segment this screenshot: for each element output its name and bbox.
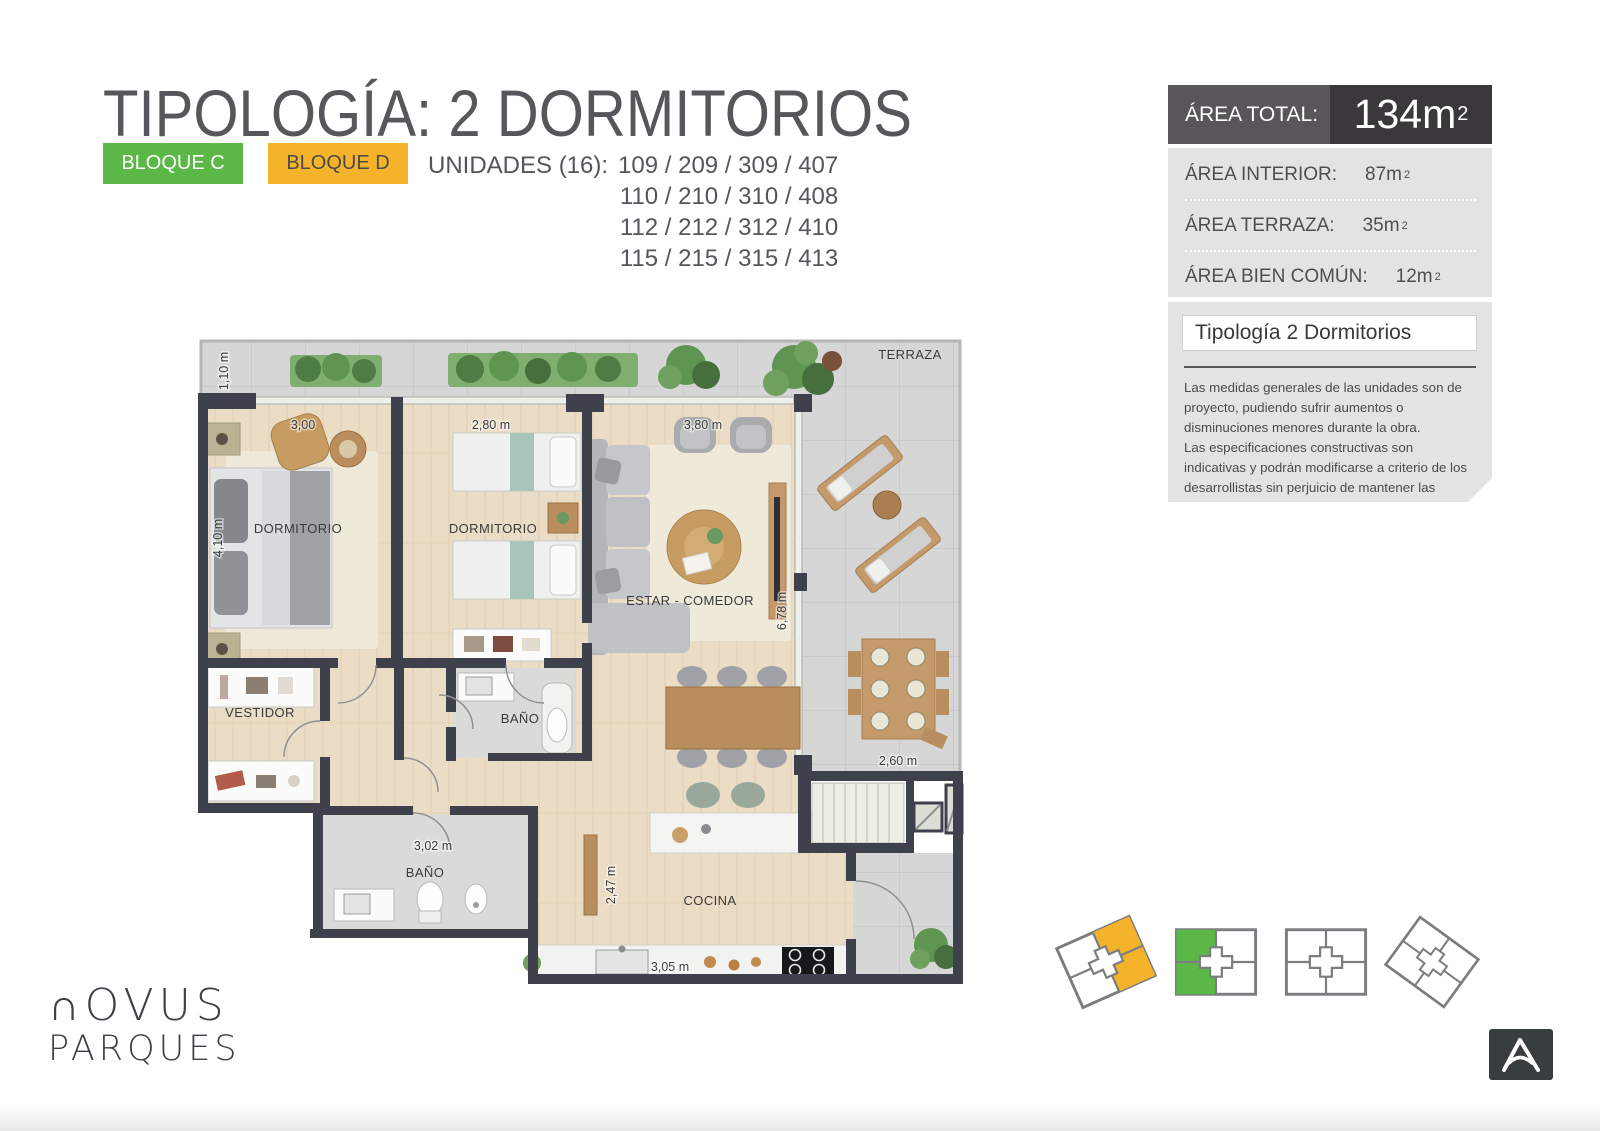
dim-stair-width: 2,60 m (879, 754, 917, 768)
disclaimer-paragraph-1: Las medidas generales de las unidades so… (1184, 378, 1474, 438)
units-numbers: 109 / 209 / 309 / 407 110 / 210 / 310 / … (618, 150, 838, 274)
floorplan-svg: DORMITORIO DORMITORIO ESTAR - COMEDOR TE… (198, 333, 968, 988)
brand-line-2: PARQUES (48, 1029, 241, 1069)
dim-living-height: 6,78 m (775, 592, 789, 630)
area-row-value: 35m (1363, 215, 1400, 237)
label-bedroom2: DORMITORIO (449, 521, 537, 536)
label-living: ESTAR - COMEDOR (626, 593, 754, 608)
area-row-terraza: ÁREA TERRAZA: 35m2 (1185, 201, 1476, 252)
label-bath-main: BAÑO (406, 865, 444, 880)
locator-block-rotated-icon (1378, 909, 1486, 1016)
kitchen-counter (536, 945, 854, 979)
locator-block-icon (1282, 922, 1370, 1002)
block-locators (1062, 912, 1472, 1012)
area-row-bien-comun: ÁREA BIEN COMÚN: 12m2 (1185, 252, 1476, 301)
area-breakdown-panel: ÁREA INTERIOR: 87m2 ÁREA TERRAZA: 35m2 Á… (1168, 148, 1492, 297)
label-kitchen: COCINA (684, 893, 737, 908)
brand-line-1: ∩OVUS (48, 983, 241, 1029)
typology-info-panel: Tipología 2 Dormitorios Las medidas gene… (1168, 302, 1492, 502)
units-list: UNIDADES (16): 109 / 209 / 309 / 407 110… (428, 150, 838, 274)
area-row-interior: ÁREA INTERIOR: 87m2 (1185, 150, 1476, 201)
dim-terrace-depth: 1,10 m (217, 352, 231, 390)
units-line: 110 / 210 / 310 / 408 (618, 181, 838, 212)
units-line: 115 / 215 / 315 / 413 (618, 243, 838, 274)
area-row-label: ÁREA BIEN COMÚN: (1185, 266, 1368, 288)
master-bed (210, 468, 332, 628)
coffee-table (667, 510, 741, 584)
mountain-a-icon (1499, 1036, 1543, 1074)
area-row-label: ÁREA INTERIOR: (1185, 164, 1337, 186)
locator-block-c-icon (1172, 922, 1260, 1002)
area-total-number: 134m (1354, 91, 1457, 138)
label-master-bedroom: DORMITORIO (254, 521, 342, 536)
floorplan: DORMITORIO DORMITORIO ESTAR - COMEDOR TE… (198, 333, 968, 988)
area-row-sup: 2 (1402, 220, 1408, 232)
locator-block-d-icon (1050, 908, 1163, 1017)
dim-kitchen-height: 2,47 m (604, 866, 618, 904)
area-row-label: ÁREA TERRAZA: (1185, 215, 1335, 237)
label-dressing: VESTIDOR (225, 705, 295, 720)
hall-console (584, 835, 597, 915)
dim-master-width: 3,00 (291, 418, 315, 432)
footer-gradient (0, 1105, 1600, 1131)
disclaimer-paragraph-2: Las especificaciones constructivas son i… (1184, 438, 1474, 518)
dim-kitchen-width: 3,05 m (651, 960, 689, 974)
terrace-dining-table (848, 639, 949, 749)
units-label: UNIDADES (16): (428, 150, 608, 181)
stairs (812, 783, 904, 843)
area-total-sup: 2 (1457, 103, 1468, 126)
area-total-bar: ÁREA TOTAL: 134m2 (1168, 85, 1492, 144)
dining-table (666, 666, 800, 768)
dim-bedroom2-width: 2,80 m (472, 418, 510, 432)
label-bath-upper: BAÑO (501, 711, 539, 726)
units-line: 112 / 212 / 312 / 410 (618, 212, 838, 243)
dim-master-height: 4,10 m (211, 519, 225, 557)
label-terrace: TERRAZA (878, 347, 941, 362)
badge-bloque-d: BLOQUE D (268, 143, 408, 184)
area-total-label: ÁREA TOTAL: (1168, 85, 1330, 144)
dim-bath-width: 3,02 m (414, 839, 452, 853)
developer-logo (1489, 1029, 1553, 1080)
page-title: TIPOLOGÍA: 2 DORMITORIOS (103, 75, 912, 151)
area-row-sup: 2 (1435, 271, 1441, 283)
area-total-value: 134m2 (1330, 85, 1492, 144)
bedroom2-dresser (453, 629, 551, 661)
badge-bloque-c: BLOQUE C (103, 143, 243, 184)
area-row-value: 12m (1396, 266, 1433, 288)
novus-parques-logo: ∩OVUS PARQUES (48, 983, 241, 1069)
area-row-value: 87m (1365, 164, 1402, 186)
units-line: 109 / 209 / 309 / 407 (618, 150, 838, 181)
divider (1184, 366, 1476, 368)
typology-title: Tipología 2 Dormitorios (1182, 315, 1477, 351)
dim-living-width: 3,80 m (684, 418, 722, 432)
area-row-sup: 2 (1404, 169, 1410, 181)
brochure-page: TIPOLOGÍA: 2 DORMITORIOS BLOQUE C BLOQUE… (0, 0, 1600, 1131)
